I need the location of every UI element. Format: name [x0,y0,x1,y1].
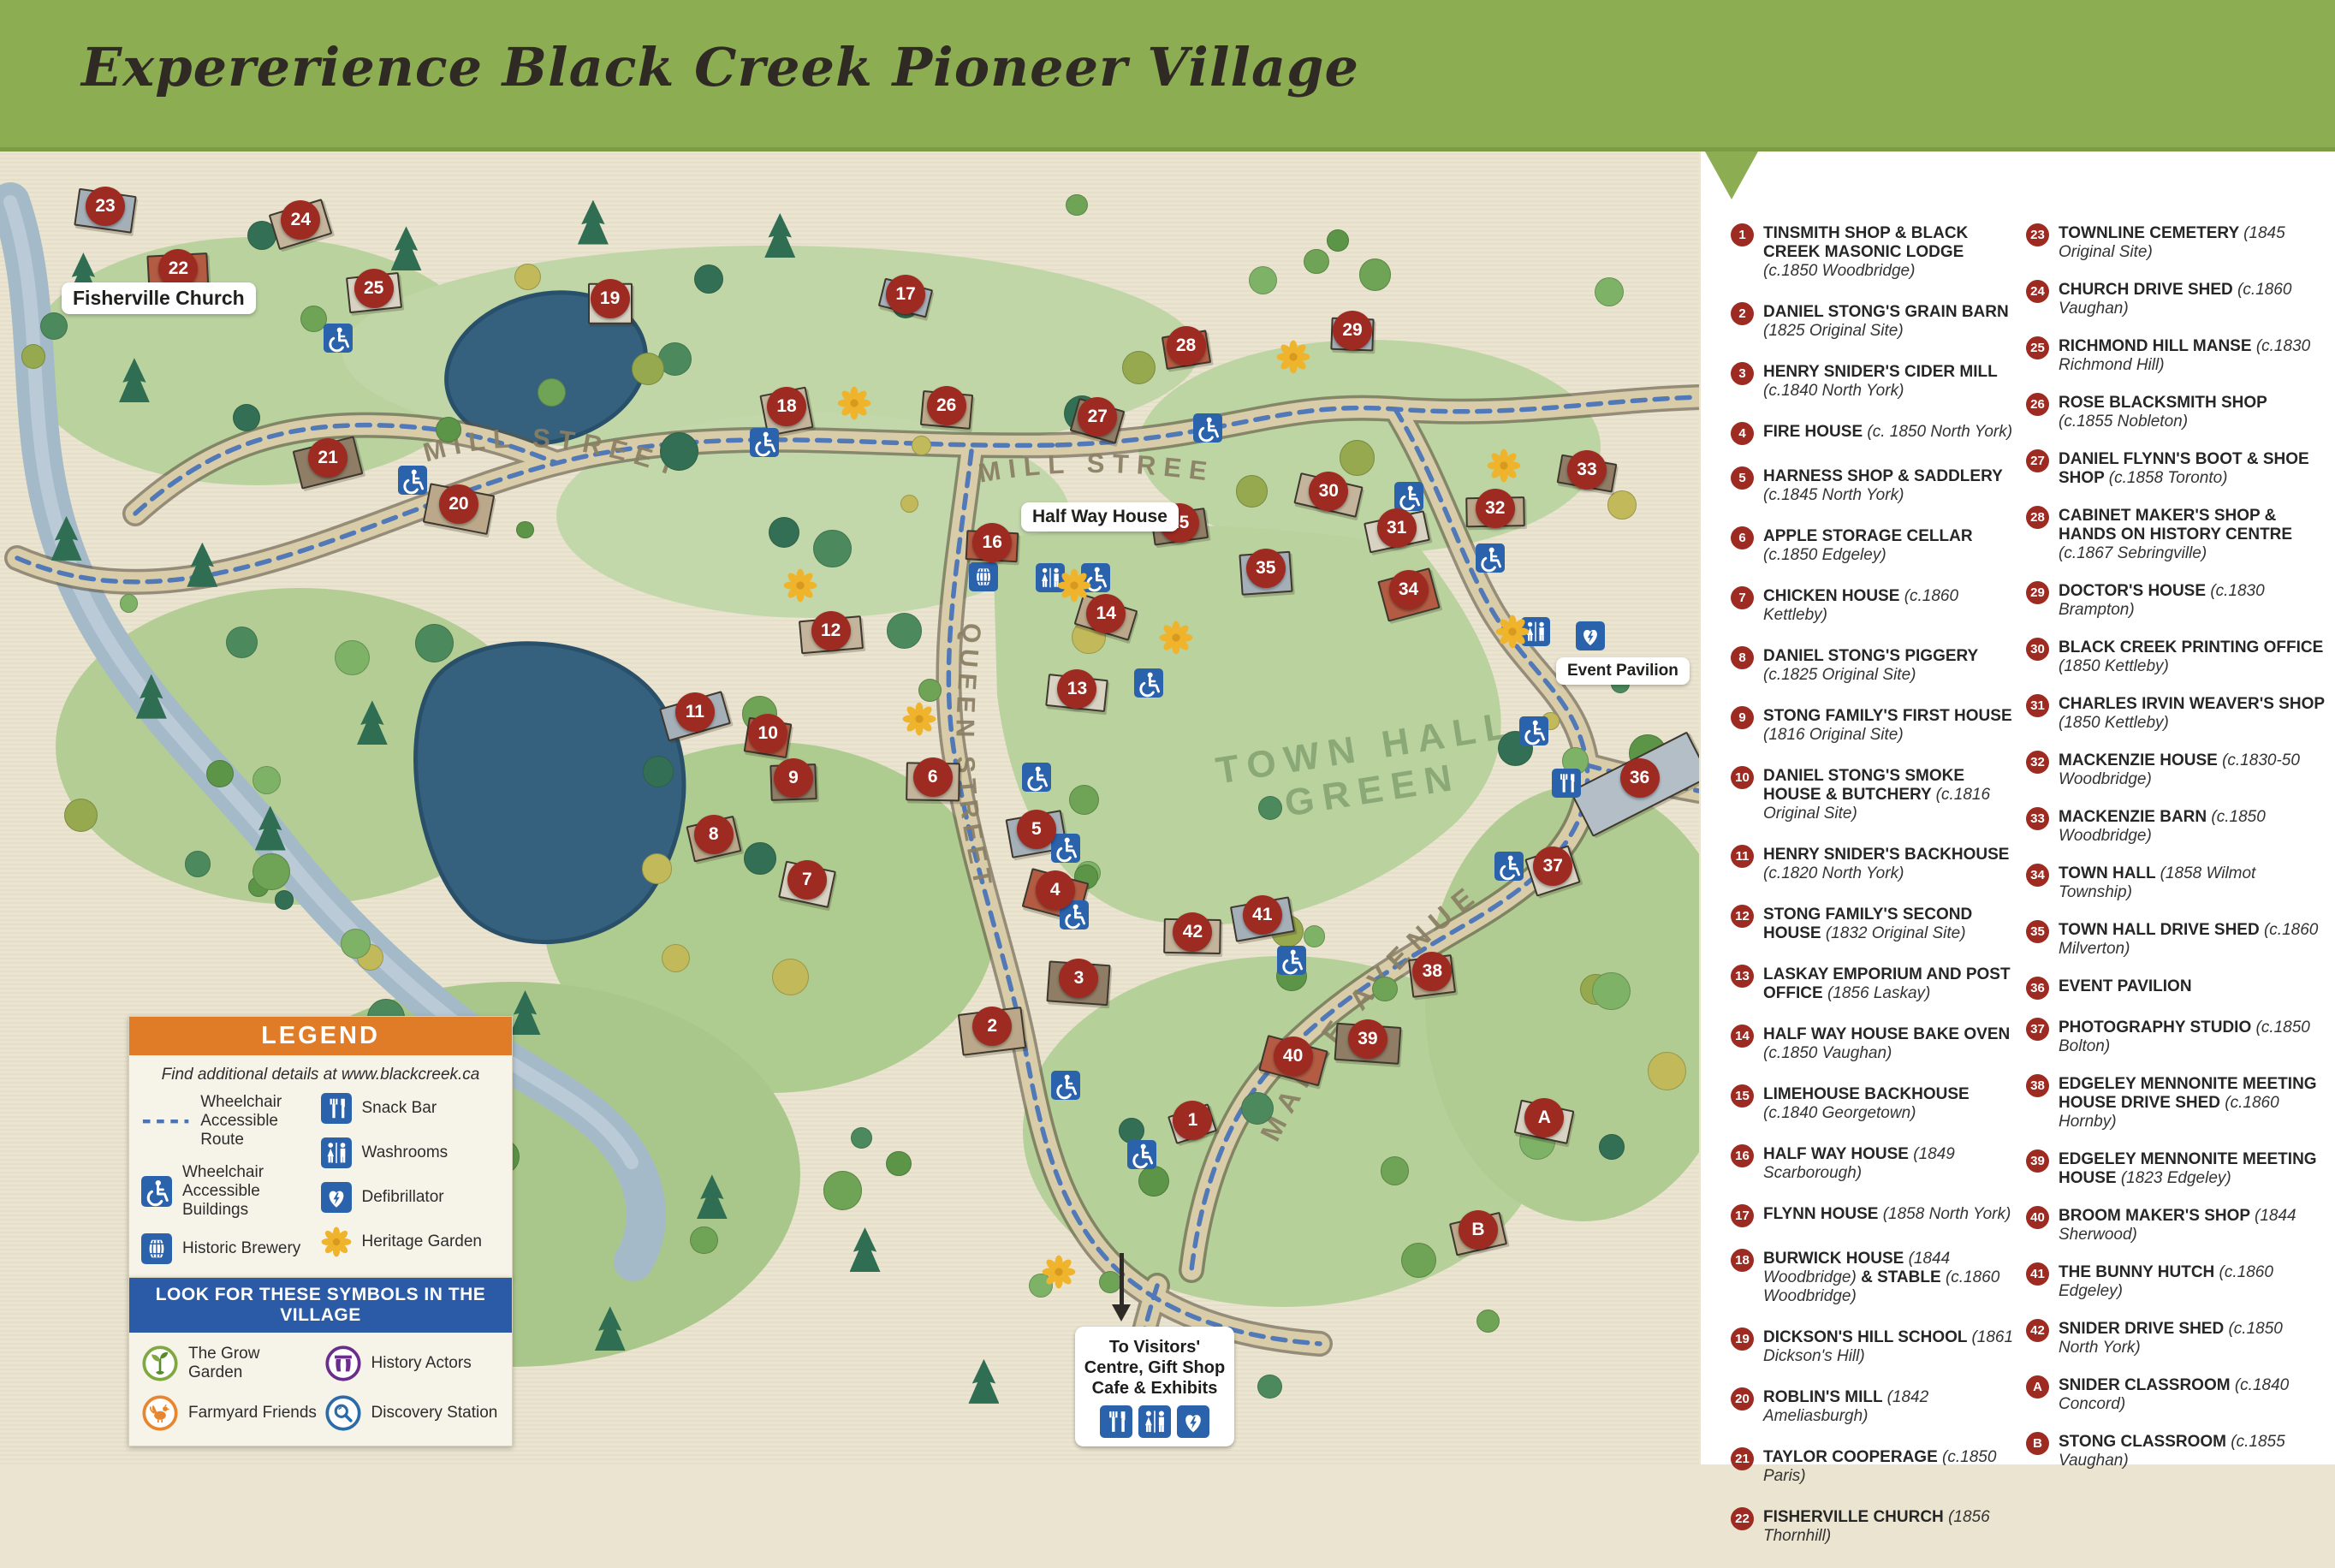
map-marker-18: 18 [767,387,806,426]
map-marker-21: 21 [308,438,348,478]
directory-item-37: 37PHOTOGRAPHY STUDIO (c.1850 Bolton) [2026,1019,2326,1056]
item-number-badge: 33 [2026,807,2049,830]
legend-row-heritage: Heritage Garden [321,1226,501,1257]
wheelchair-icon [324,324,353,353]
discovery-icon [324,1394,362,1432]
tree-icon [632,353,664,385]
heritage-icon [321,1226,352,1257]
item-number-badge: 32 [2026,751,2049,774]
directory-item-26: 26ROSE BLACKSMITH SHOP (c.1855 Nobleton) [2026,394,2326,431]
item-text: LIMEHOUSE BACKHOUSE (c.1840 Georgetown) [1763,1085,2015,1123]
map-marker-10: 10 [748,714,787,753]
item-number-badge: 38 [2026,1074,2049,1097]
building-directory-panel: 1TINSMITH SHOP & BLACK CREEK MASONIC LOD… [1701,147,2335,1464]
directory-item-25: 25RICHMOND HILL MANSE (c.1830 Richmond H… [2026,337,2326,375]
directory-item-13: 13LASKAY EMPORIUM AND POST OFFICE (1856 … [1731,965,2015,1003]
legend-row-wheelchair: Wheelchair Accessible Buildings [141,1163,321,1220]
map-marker-A: A [1524,1098,1564,1137]
callout-event-pavilion: Event Pavilion [1556,657,1690,685]
tree-icon [64,799,98,832]
visitor-direction-arrow [1120,1253,1124,1306]
visitor-centre-sign: To Visitors' Centre, Gift Shop Cafe & Ex… [1075,1327,1234,1446]
map-marker-17: 17 [886,275,925,314]
symbol-label: History Actors [371,1354,472,1373]
directory-item-15: 15LIMEHOUSE BACKHOUSE (c.1840 Georgetown… [1731,1085,2015,1123]
item-text: HENRY SNIDER'S BACKHOUSE (c.1820 North Y… [1763,846,2015,883]
visitor-sign-line: To Visitors' [1082,1337,1227,1357]
heritage-icon [783,568,817,603]
map-marker-2: 2 [972,1007,1012,1046]
tree-icon [1592,972,1631,1011]
heritage-icon [1276,340,1310,374]
item-number-badge: 40 [2026,1206,2049,1229]
defib-icon [1576,621,1605,650]
map-marker-31: 31 [1377,508,1417,548]
symbols-header: LOOK FOR THESE SYMBOLS IN THE VILLAGE [129,1278,512,1333]
directory-item-24: 24CHURCH DRIVE SHED (c.1860 Vaughan) [2026,281,2326,318]
tree-icon [1476,1310,1500,1333]
wheelchair-icon [1134,668,1163,698]
tree-icon [1236,475,1268,507]
item-number-badge: 13 [1731,965,1754,988]
tree-icon [275,890,294,909]
item-number-badge: 3 [1731,362,1754,385]
item-text: CHARLES IRVIN WEAVER'S SHOP (1850 Kettle… [2059,695,2326,733]
tree-icon [514,264,541,290]
item-number-badge: 26 [2026,393,2049,416]
wheelchair-icon [1394,482,1423,511]
legend-header: LEGEND [129,1017,512,1055]
map-marker-13: 13 [1057,669,1096,709]
snackbar-icon [1100,1405,1132,1438]
legend-note: Find additional details at www.blackcree… [134,1066,507,1084]
panel-pointer-triangle [1705,151,1758,199]
directory-item-9: 9STONG FAMILY'S FIRST HOUSE (1816 Origin… [1731,707,2015,745]
item-number-badge: 34 [2026,864,2049,887]
tree-icon [1381,1156,1409,1185]
directory-item-6: 6APPLE STORAGE CELLAR (c.1850 Edgeley) [1731,527,2015,565]
item-number-badge: 8 [1731,646,1754,669]
item-number-badge: 18 [1731,1249,1754,1272]
legend-label: Wheelchair Accessible Route [200,1093,320,1149]
map-marker-25: 25 [354,269,394,308]
directory-item-34: 34TOWN HALL (1858 Wilmot Township) [2026,864,2326,902]
map-marker-24: 24 [281,200,320,240]
directory-item-1: 1TINSMITH SHOP & BLACK CREEK MASONIC LOD… [1731,224,2015,281]
item-text: TINSMITH SHOP & BLACK CREEK MASONIC LODG… [1763,224,2015,281]
tree-icon [851,1127,872,1149]
symbol-row-grow: The Grow Garden [141,1345,318,1382]
item-text: THE BUNNY HUTCH (c.1860 Edgeley) [2059,1263,2326,1301]
item-number-badge: 7 [1731,586,1754,609]
map-marker-42: 42 [1173,912,1212,952]
tree-icon [1401,1243,1436,1278]
callout-half-way-house: Half Way House [1021,502,1179,532]
directory-item-A: ASNIDER CLASSROOM (c.1840 Concord) [2026,1376,2326,1414]
page-title: Expererience Black Creek Pioneer Village [81,36,1359,98]
item-text: STONG CLASSROOM (c.1855 Vaughan) [2059,1433,2326,1470]
item-text: EVENT PAVILION [2059,977,2192,996]
map-marker-34: 34 [1389,570,1429,609]
washroom-icon [1138,1405,1171,1438]
wheelchair-icon [1051,1071,1080,1100]
item-text: MACKENZIE HOUSE (c.1830-50 Woodbridge) [2059,751,2326,789]
item-text: ROSE BLACKSMITH SHOP (c.1855 Nobleton) [2059,394,2326,431]
map-marker-3: 3 [1059,959,1098,998]
defib-icon [321,1182,352,1213]
item-number-badge: 20 [1731,1387,1754,1411]
directory-item-4: 4FIRE HOUSE (c. 1850 North York) [1731,423,2015,445]
grow-icon [141,1345,179,1382]
directory-item-20: 20ROBLIN'S MILL (1842 Ameliasburgh) [1731,1388,2015,1426]
item-number-badge: 39 [2026,1149,2049,1173]
directory-item-33: 33MACKENZIE BARN (c.1850 Woodbridge) [2026,808,2326,846]
item-number-badge: B [2026,1432,2049,1455]
heritage-icon [1487,448,1521,483]
tree-icon [516,521,533,538]
wheelchair-icon [1022,763,1051,792]
item-text: SNIDER DRIVE SHED (c.1850 North York) [2059,1320,2326,1357]
item-text: HALF WAY HOUSE (1849 Scarborough) [1763,1145,2015,1183]
wheelchair-icon [1051,834,1080,863]
symbol-label: Discovery Station [371,1404,498,1422]
item-number-badge: 25 [2026,336,2049,359]
callout-fisherville-church: Fisherville Church [62,282,256,314]
directory-item-18: 18BURWICK HOUSE (1844 Woodbridge) & STAB… [1731,1250,2015,1306]
item-number-badge: 14 [1731,1025,1754,1048]
map-marker-12: 12 [811,611,851,650]
item-text: CABINET MAKER'S SHOP & HANDS ON HISTORY … [2059,507,2326,563]
symbol-label: Farmyard Friends [188,1404,317,1422]
item-text: TAYLOR COOPERAGE (c.1850 Paris) [1763,1448,2015,1486]
item-text: EDGELEY MENNONITE MEETING HOUSE (1823 Ed… [2059,1150,2326,1188]
legend-row-snackbar: Snack Bar [321,1093,501,1124]
legend-label: Washrooms [362,1143,449,1162]
item-number-badge: 6 [1731,526,1754,549]
directory-item-17: 17FLYNN HOUSE (1858 North York) [1731,1205,2015,1227]
farmyard-icon [141,1394,179,1432]
map-marker-11: 11 [675,692,715,732]
wheelchair-icon [141,1176,172,1207]
item-number-badge: A [2026,1375,2049,1399]
map-marker-30: 30 [1309,472,1348,511]
directory-item-22: 22FISHERVILLE CHURCH (1856 Thornhill) [1731,1508,2015,1546]
tree-icon [1599,1134,1624,1159]
item-number-badge: 29 [2026,581,2049,604]
tree-icon [335,640,370,675]
legend-row-washroom: Washrooms [321,1137,501,1168]
item-number-badge: 28 [2026,506,2049,529]
tree-icon [538,378,566,407]
item-text: DANIEL STONG'S GRAIN BARN (1825 Original… [1763,303,2015,341]
legend-row-route: Wheelchair Accessible Route [141,1093,321,1149]
item-number-badge: 22 [1731,1507,1754,1530]
item-text: BURWICK HOUSE (1844 Woodbridge) & STABLE… [1763,1250,2015,1306]
village-symbols: LOOK FOR THESE SYMBOLS IN THE VILLAGE Th… [128,1277,513,1446]
directory-item-31: 31CHARLES IRVIN WEAVER'S SHOP (1850 Kett… [2026,695,2326,733]
wheelchair-icon [1193,413,1222,442]
legend: LEGEND Find additional details at www.bl… [128,1016,513,1279]
item-text: STONG FAMILY'S SECOND HOUSE (1832 Origin… [1763,906,2015,943]
visitor-sign-line: Centre, Gift Shop [1082,1357,1227,1378]
tree-icon [1258,796,1282,820]
directory-item-21: 21TAYLOR COOPERAGE (c.1850 Paris) [1731,1448,2015,1486]
directory-item-10: 10DANIEL STONG'S SMOKE HOUSE & BUTCHERY … [1731,767,2015,823]
heritage-icon [1057,568,1091,603]
directory-item-41: 41THE BUNNY HUTCH (c.1860 Edgeley) [2026,1263,2326,1301]
legend-label: Wheelchair Accessible Buildings [182,1163,321,1220]
route-icon [141,1115,190,1127]
directory-item-12: 12STONG FAMILY'S SECOND HOUSE (1832 Orig… [1731,906,2015,943]
item-text: DANIEL STONG'S PIGGERY (c.1825 Original … [1763,647,2015,685]
item-number-badge: 36 [2026,977,2049,1000]
wheelchair-icon [1476,543,1505,573]
item-number-badge: 23 [2026,223,2049,246]
map-marker-40: 40 [1274,1036,1313,1076]
item-number-badge: 1 [1731,223,1754,246]
tree-icon [887,613,922,648]
item-text: ROBLIN'S MILL (1842 Ameliasburgh) [1763,1388,2015,1426]
directory-item-30: 30BLACK CREEK PRINTING OFFICE (1850 Kett… [2026,638,2326,676]
map-marker-6: 6 [913,757,953,797]
visitor-sign-line: Cafe & Exhibits [1082,1378,1227,1399]
map-marker-36: 36 [1620,758,1660,798]
directory-item-11: 11HENRY SNIDER'S BACKHOUSE (c.1820 North… [1731,846,2015,883]
mill-pond-lower [416,644,684,942]
tree-icon [1304,925,1325,947]
directory-item-28: 28CABINET MAKER'S SHOP & HANDS ON HISTOR… [2026,507,2326,563]
map-marker-5: 5 [1017,810,1056,849]
item-text: FISHERVILLE CHURCH (1856 Thornhill) [1763,1508,2015,1546]
heritage-icon [1495,615,1530,649]
symbol-row-actors: History Actors [324,1345,501,1382]
item-number-badge: 31 [2026,694,2049,717]
map-marker-19: 19 [591,279,630,318]
tree-icon [1359,258,1391,290]
item-number-badge: 42 [2026,1319,2049,1342]
item-number-badge: 41 [2026,1262,2049,1286]
item-number-badge: 9 [1731,706,1754,729]
tree-icon [900,495,918,513]
tree-icon [341,929,371,959]
washroom-icon [321,1137,352,1168]
legend-label: Snack Bar [362,1099,437,1118]
item-text: LASKAY EMPORIUM AND POST OFFICE (1856 La… [1763,965,2015,1003]
item-number-badge: 16 [1731,1144,1754,1167]
tree-icon [253,853,290,891]
map-marker-26: 26 [927,386,966,425]
directory-column-1: 1TINSMITH SHOP & BLACK CREEK MASONIC LOD… [1731,224,2015,1568]
tree-icon [21,344,45,368]
directory-item-14: 14HALF WAY HOUSE BAKE OVEN (c.1850 Vaugh… [1731,1025,2015,1063]
map-marker-1: 1 [1173,1101,1212,1140]
map-marker-35: 35 [1246,549,1286,588]
item-text: PHOTOGRAPHY STUDIO (c.1850 Bolton) [2059,1019,2326,1056]
tree-icon [415,624,454,662]
item-number-badge: 30 [2026,638,2049,661]
legend-row-defib: Defibrillator [321,1182,501,1213]
map-marker-14: 14 [1086,594,1126,633]
directory-item-23: 23TOWNLINE CEMETERY (1845 Original Site) [2026,224,2326,262]
map-marker-7: 7 [787,860,827,900]
map-marker-20: 20 [439,484,478,524]
item-number-badge: 4 [1731,422,1754,445]
tree-icon [1372,977,1398,1002]
map-marker-B: B [1459,1210,1498,1250]
item-text: EDGELEY MENNONITE MEETING HOUSE DRIVE SH… [2059,1075,2326,1131]
map-marker-8: 8 [694,815,734,854]
tree-icon [436,417,461,442]
tree-icon [886,1151,912,1177]
item-number-badge: 17 [1731,1204,1754,1227]
directory-item-38: 38EDGELEY MENNONITE MEETING HOUSE DRIVE … [2026,1075,2326,1131]
directory-item-29: 29DOCTOR'S HOUSE (c.1830 Brampton) [2026,582,2326,620]
item-text: FLYNN HOUSE (1858 North York) [1763,1205,2011,1224]
village-map: MILL STREET MILL STREET QUEEN STREET MAP… [0,147,1699,1464]
item-text: BROOM MAKER'S SHOP (1844 Sherwood) [2059,1207,2326,1244]
directory-item-8: 8DANIEL STONG'S PIGGERY (c.1825 Original… [1731,647,2015,685]
map-marker-29: 29 [1333,311,1372,350]
directory-item-42: 42SNIDER DRIVE SHED (c.1850 North York) [2026,1320,2326,1357]
item-text: HENRY SNIDER'S CIDER MILL (c.1840 North … [1763,363,2015,401]
wheelchair-icon [1277,946,1306,975]
item-number-badge: 27 [2026,449,2049,472]
map-marker-27: 27 [1078,397,1117,437]
wheelchair-icon [1519,716,1548,745]
map-marker-4: 4 [1036,870,1075,910]
page-header: Expererience Black Creek Pioneer Village [0,0,2335,151]
directory-column-2: 23TOWNLINE CEMETERY (1845 Original Site)… [2026,224,2326,1489]
item-text: TOWNLINE CEMETERY (1845 Original Site) [2059,224,2326,262]
item-text: CHICKEN HOUSE (c.1860 Kettleby) [1763,587,2015,625]
item-number-badge: 24 [2026,280,2049,303]
item-number-badge: 37 [2026,1018,2049,1041]
tree-icon [1595,277,1624,306]
defib-icon [1177,1405,1209,1438]
tree-icon [1069,785,1099,815]
map-marker-9: 9 [774,758,813,798]
item-number-badge: 10 [1731,766,1754,789]
item-number-badge: 2 [1731,302,1754,325]
symbol-row-discovery: Discovery Station [324,1394,501,1432]
tree-icon [1122,351,1156,384]
directory-item-7: 7CHICKEN HOUSE (c.1860 Kettleby) [1731,587,2015,625]
brewery-icon [969,562,998,591]
directory-item-5: 5HARNESS SHOP & SADDLERY (c.1845 North Y… [1731,467,2015,505]
directory-item-2: 2DANIEL STONG'S GRAIN BARN (1825 Origina… [1731,303,2015,341]
item-text: DOCTOR'S HOUSE (c.1830 Brampton) [2059,582,2326,620]
heritage-icon [1159,621,1193,655]
directory-item-36: 36EVENT PAVILION [2026,977,2326,1000]
map-marker-32: 32 [1476,489,1515,528]
snackbar-icon [1552,769,1581,798]
item-text: FIRE HOUSE (c. 1850 North York) [1763,423,2012,442]
heritage-icon [902,702,936,736]
symbol-label: The Grow Garden [188,1345,318,1382]
tree-icon [185,851,211,877]
item-text: TOWN HALL (1858 Wilmot Township) [2059,864,2326,902]
item-number-badge: 5 [1731,466,1754,490]
map-marker-38: 38 [1412,952,1452,991]
directory-item-16: 16HALF WAY HOUSE (1849 Scarborough) [1731,1145,2015,1183]
tree-icon [253,766,281,794]
map-marker-33: 33 [1567,450,1607,490]
tree-icon [1327,229,1349,252]
wheelchair-icon [398,466,427,495]
tree-icon [813,530,851,567]
snackbar-icon [321,1093,352,1124]
legend-left-column: Wheelchair Accessible RouteWheelchair Ac… [141,1093,321,1264]
tree-icon [660,432,698,471]
item-number-badge: 11 [1731,845,1754,868]
wheelchair-icon [750,428,779,457]
legend-right-column: Snack BarWashroomsDefibrillatorHeritage … [321,1093,501,1264]
tree-icon [918,679,942,702]
item-text: RICHMOND HILL MANSE (c.1830 Richmond Hil… [2059,337,2326,375]
tree-icon [1648,1052,1686,1090]
item-text: DANIEL STONG'S SMOKE HOUSE & BUTCHERY (c… [1763,767,2015,823]
tree-icon [1257,1375,1282,1399]
item-number-badge: 21 [1731,1447,1754,1470]
tree-icon [1340,440,1375,475]
tree-icon [1607,490,1636,519]
map-marker-39: 39 [1348,1019,1387,1059]
item-text: DANIEL FLYNN'S BOOT & SHOE SHOP (c.1858 … [2059,450,2326,488]
item-text: HARNESS SHOP & SADDLERY (c.1845 North Yo… [1763,467,2015,505]
heritage-icon [1042,1255,1076,1289]
item-text: SNIDER CLASSROOM (c.1840 Concord) [2059,1376,2326,1414]
directory-item-40: 40BROOM MAKER'S SHOP (1844 Sherwood) [2026,1207,2326,1244]
tree-icon [1066,194,1088,217]
item-text: HALF WAY HOUSE BAKE OVEN (c.1850 Vaughan… [1763,1025,2015,1063]
tree-icon [206,760,234,787]
directory-item-27: 27DANIEL FLYNN'S BOOT & SHOE SHOP (c.185… [2026,450,2326,488]
tree-icon [662,944,690,972]
directory-item-19: 19DICKSON'S HILL SCHOOL (1861 Dickson's … [1731,1328,2015,1366]
directory-item-3: 3HENRY SNIDER'S CIDER MILL (c.1840 North… [1731,363,2015,401]
item-text: TOWN HALL DRIVE SHED (c.1860 Milverton) [2059,921,2326,959]
item-text: DICKSON'S HILL SCHOOL (1861 Dickson's Hi… [1763,1328,2015,1366]
legend-label: Heritage Garden [362,1232,482,1251]
item-text: APPLE STORAGE CELLAR (c.1850 Edgeley) [1763,527,2015,565]
brewery-icon [141,1233,172,1264]
tree-icon [1119,1118,1144,1143]
map-marker-41: 41 [1243,895,1282,935]
item-number-badge: 12 [1731,905,1754,928]
tree-icon [226,627,258,658]
map-marker-28: 28 [1167,326,1206,365]
tree-icon [823,1171,863,1210]
legend-row-brewery: Historic Brewery [141,1233,321,1264]
wheelchair-icon [1127,1140,1156,1169]
tree-icon [1138,1166,1169,1197]
item-text: CHURCH DRIVE SHED (c.1860 Vaughan) [2059,281,2326,318]
item-text: BLACK CREEK PRINTING OFFICE (1850 Kettle… [2059,638,2326,676]
item-text: STONG FAMILY'S FIRST HOUSE (1816 Origina… [1763,707,2015,745]
legend-label: Defibrillator [362,1188,444,1207]
map-marker-23: 23 [86,187,125,226]
map-marker-16: 16 [972,523,1012,562]
directory-item-35: 35TOWN HALL DRIVE SHED (c.1860 Milverton… [2026,921,2326,959]
item-number-badge: 15 [1731,1084,1754,1108]
tree-icon [690,1226,717,1254]
item-text: MACKENZIE BARN (c.1850 Woodbridge) [2059,808,2326,846]
legend-label: Historic Brewery [182,1239,300,1258]
item-number-badge: 19 [1731,1327,1754,1351]
map-marker-37: 37 [1533,846,1572,886]
tree-icon [1249,266,1277,294]
tree-icon [643,756,674,787]
